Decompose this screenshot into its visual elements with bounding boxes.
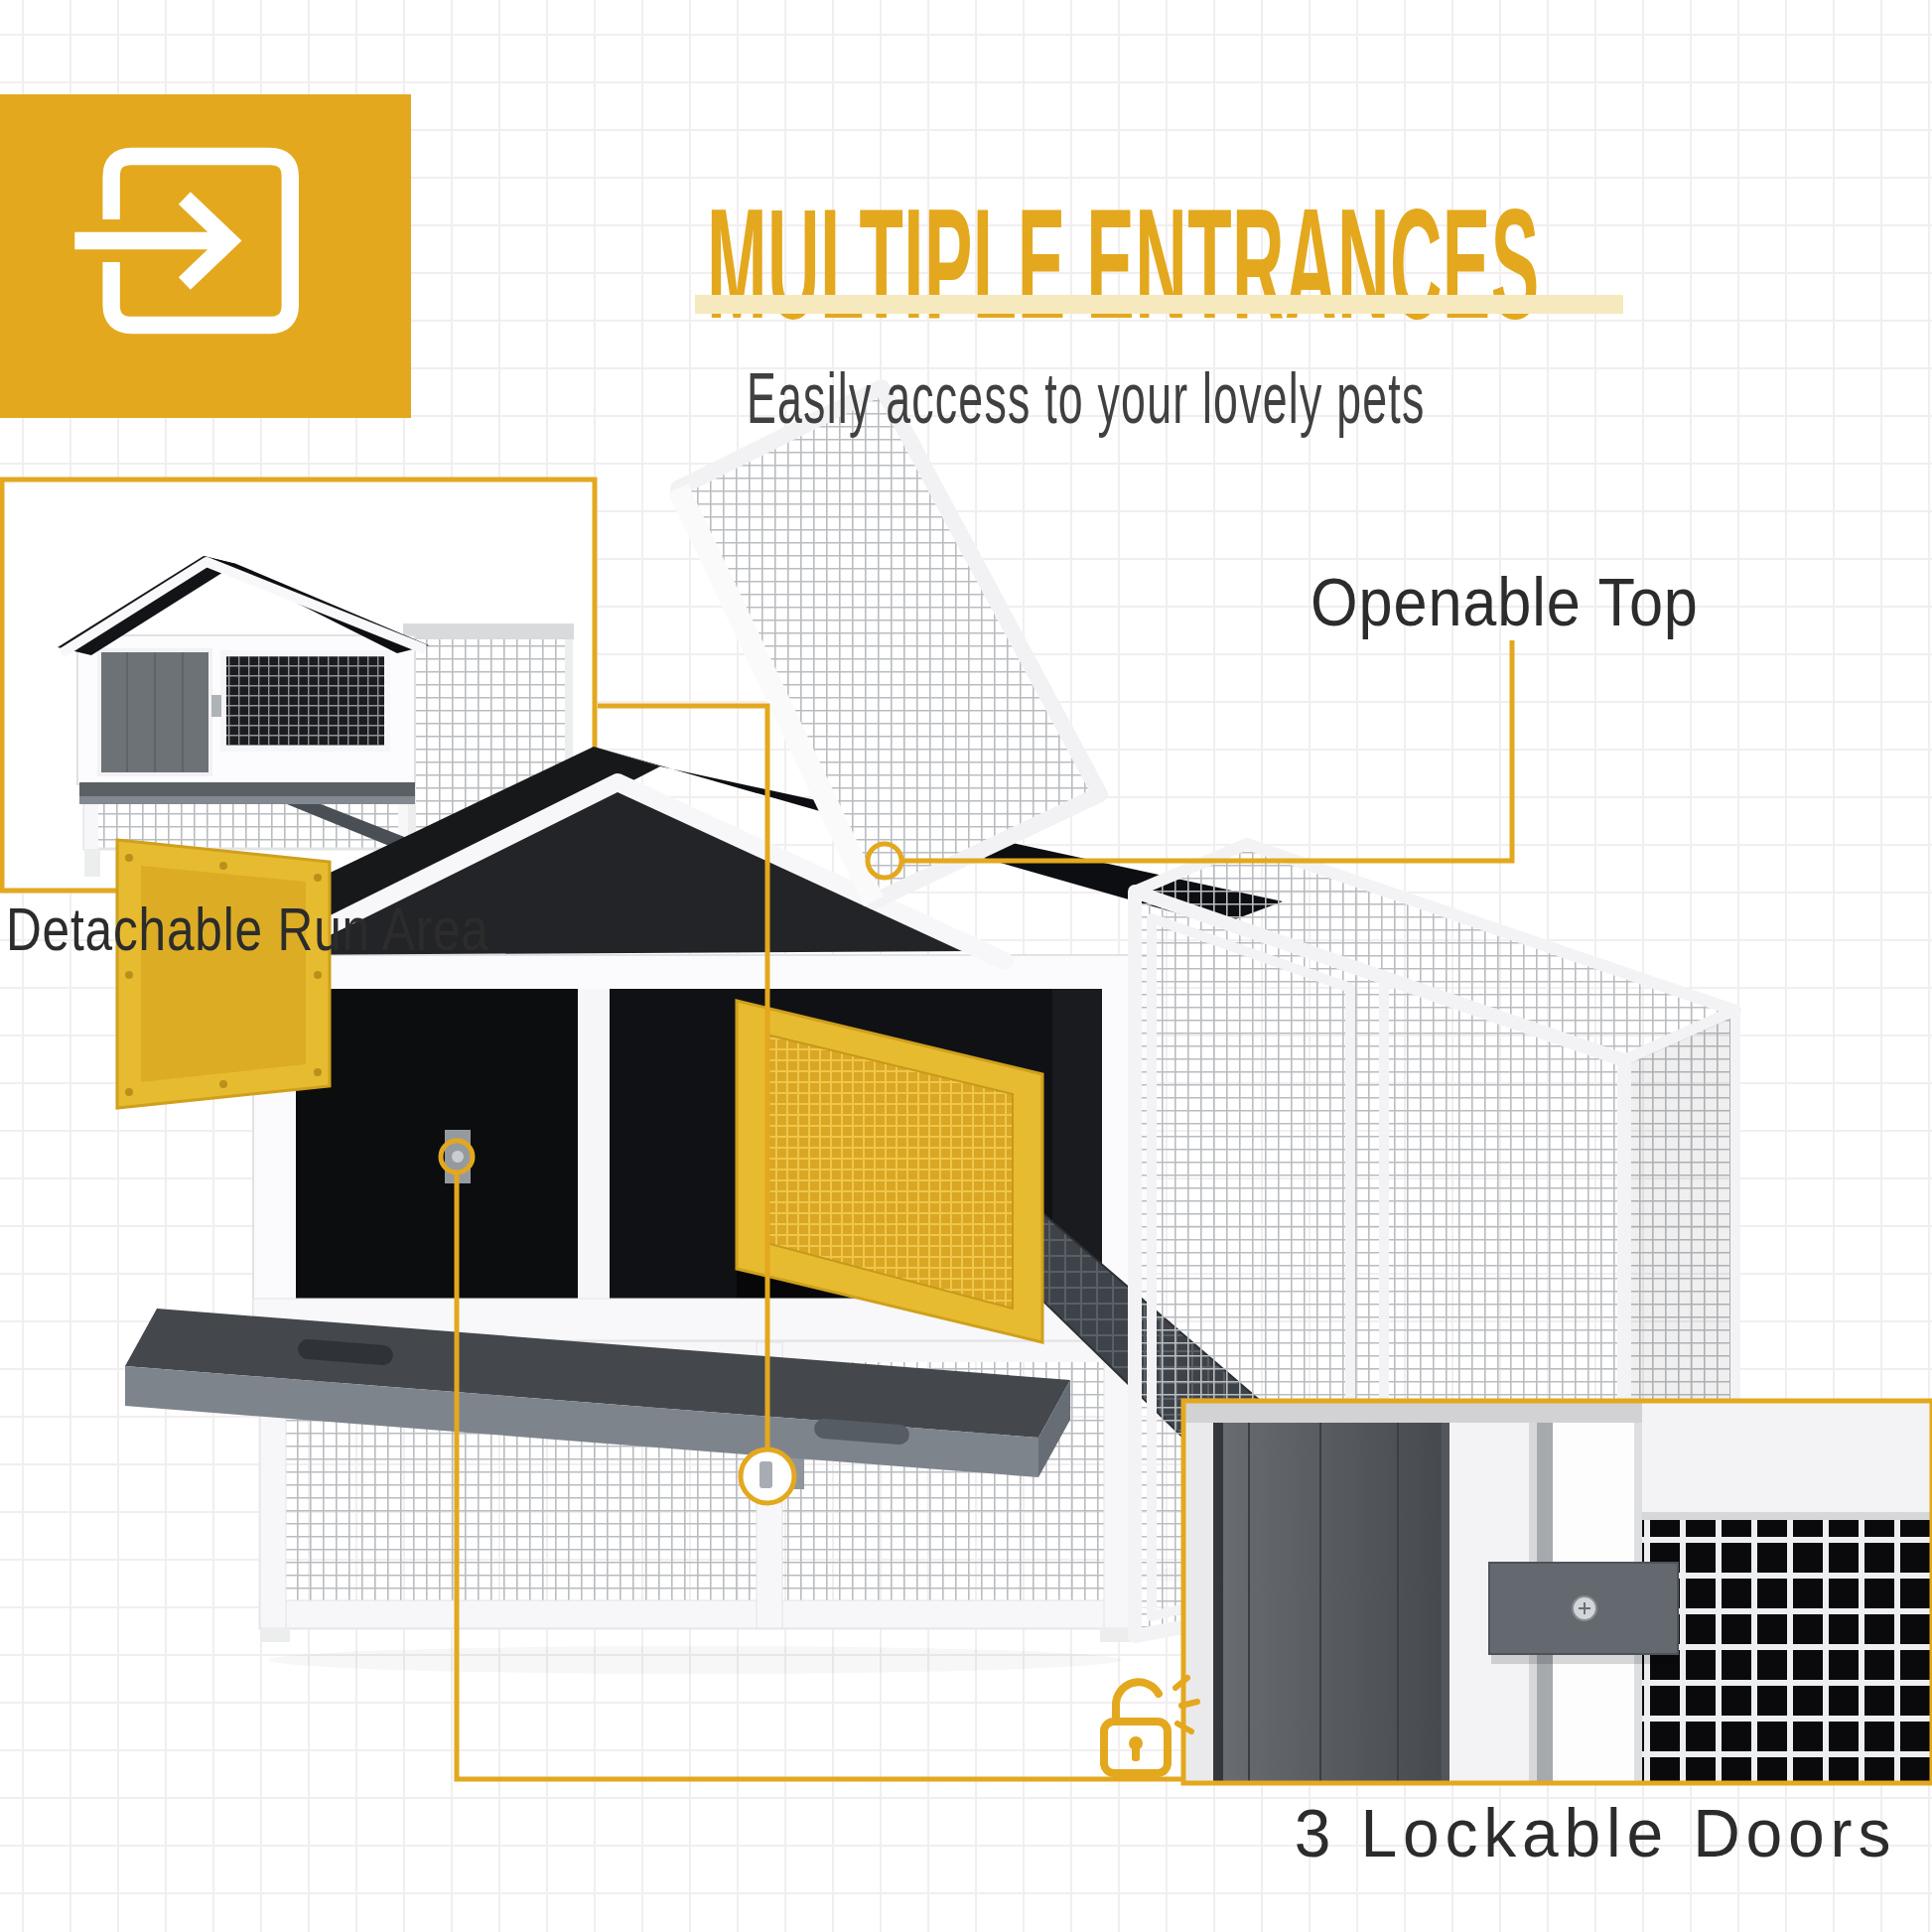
page-title: MULTIPLE ENTRANCES bbox=[707, 185, 1540, 342]
page-subtitle: Easily access to your lovely pets bbox=[747, 362, 1426, 434]
house-left-bay bbox=[296, 989, 578, 1299]
enter-arrow-icon bbox=[68, 134, 316, 347]
label-openable-top: Openable Top bbox=[1311, 568, 1699, 635]
product-infographic: MULTIPLE ENTRANCES Easily access to your… bbox=[0, 0, 1932, 1932]
openable-mesh-lid bbox=[678, 387, 1100, 901]
title-underline-bar bbox=[695, 295, 1623, 314]
entrance-icon-badge bbox=[0, 94, 411, 418]
label-3-lockable-doors: 3 Lockable Doors bbox=[1295, 1799, 1896, 1866]
yellow-solid-door bbox=[117, 840, 330, 1108]
marker-latch-detail bbox=[759, 1461, 772, 1488]
inset2-lock-photo bbox=[1183, 1401, 1932, 1783]
label-detachable-run-area: Detachable Run Area bbox=[6, 898, 489, 960]
padlock-keyhole-stem bbox=[1132, 1745, 1140, 1761]
inset-lockable-doors bbox=[1183, 1401, 1932, 1783]
